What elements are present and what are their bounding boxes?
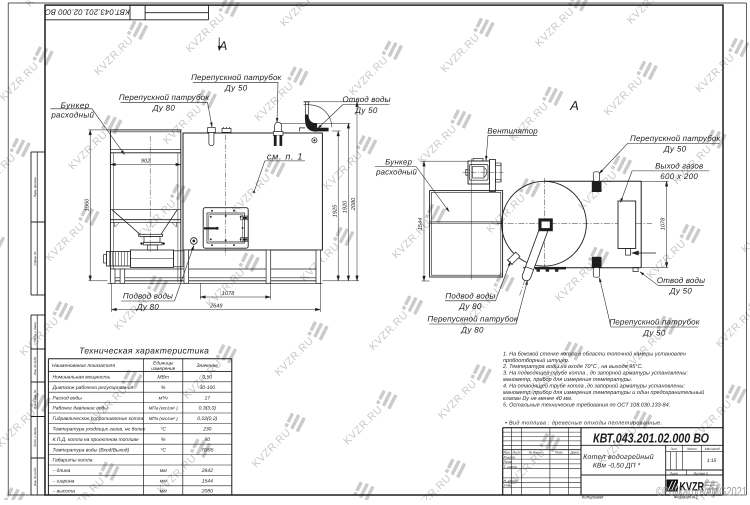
svg-text:Перепускной патрубок: Перепускной патрубок	[191, 73, 282, 82]
svg-text:1. На боковой стенке котла в: 1. На боковой стенке котла в области топ…	[503, 350, 686, 357]
svg-text:%: %	[161, 437, 166, 443]
svg-text:902: 902	[141, 159, 151, 165]
svg-text:Значение: Значение	[196, 363, 218, 369]
svg-text:расходный: расходный	[50, 111, 94, 120]
svg-text:манометр, прибор для измерени: манометр, прибор для измерения температу…	[503, 376, 632, 383]
svg-text:А: А	[218, 39, 227, 53]
svg-text:Разраб.: Разраб.	[504, 455, 516, 459]
svg-text:КВТ.043.201.02.000 ВО: КВТ.043.201.02.000 ВО	[45, 8, 130, 17]
svg-text:Единицы: Единицы	[153, 360, 174, 366]
svg-text:2. Температура воды на входе: 2. Температура воды на входе 70°С , на в…	[502, 364, 643, 370]
svg-text:1:15: 1:15	[707, 458, 717, 464]
svg-text:Перепускной патрубок: Перепускной патрубок	[427, 315, 518, 324]
svg-text:пробоотборный штуцер.: пробоотборный штуцер.	[503, 357, 569, 364]
svg-text:Ду 80: Ду 80	[460, 325, 484, 334]
svg-text:Ду 50: Ду 50	[642, 328, 666, 337]
svg-text:Наименование показателя: Наименование показателя	[52, 363, 115, 369]
svg-text:Подвод воды: Подвод воды	[123, 292, 173, 301]
svg-text:Лист: Лист	[669, 471, 679, 475]
svg-text:см. п. 1: см. п. 1	[267, 151, 303, 161]
svg-text:1078: 1078	[661, 217, 667, 230]
svg-text:1544: 1544	[202, 479, 213, 485]
svg-text:Справ. №: Справ. №	[33, 251, 37, 266]
svg-text:©PolikarpovaMG2021: ©PolikarpovaMG2021	[656, 485, 747, 499]
svg-text:Номинальная мощность: Номинальная мощность	[53, 375, 111, 381]
svg-text:Ду 80: Ду 80	[152, 104, 176, 113]
svg-text:Лит.: Лит.	[669, 447, 678, 451]
svg-text:Ду 50: Ду 50	[669, 287, 693, 296]
svg-text:Бункер: Бункер	[385, 158, 413, 167]
svg-text:манометр, прибор для измерени: манометр, прибор для измерения температу…	[503, 389, 704, 396]
svg-text:• Вид топлива : древесные от: • Вид топлива : древесные отходы пеллети…	[505, 420, 662, 426]
svg-text:Выход газов: Выход газов	[655, 162, 703, 171]
svg-text:Взам. инв. №: Взам. инв. №	[33, 389, 37, 409]
svg-text:Изм.: Изм.	[504, 450, 511, 454]
svg-text:Масса: Масса	[687, 447, 697, 451]
svg-text:2642: 2642	[201, 468, 213, 474]
svg-text:1544: 1544	[418, 218, 424, 230]
svg-text:Лист: Лист	[511, 450, 521, 454]
svg-text:К.П.Д. котла на проектном топл: К.П.Д. котла на проектном топливе	[53, 437, 139, 443]
svg-text:0,50: 0,50	[202, 375, 212, 381]
svg-text:Подп. и дата: Подп. и дата	[33, 427, 37, 447]
svg-text:МПа (кгс/см² ): МПа (кгс/см² )	[149, 416, 178, 421]
svg-text:2649: 2649	[209, 303, 222, 309]
svg-text:Н. контр.: Н. контр.	[504, 479, 519, 483]
svg-text:– ширина: – ширина	[52, 480, 75, 485]
svg-text:Температура воды (Вход/Выход): Температура воды (Вход/Выход)	[53, 447, 130, 453]
svg-text:Масштаб: Масштаб	[705, 447, 720, 451]
svg-text:клапан Dу не менее 40 мм.: клапан Dу не менее 40 мм.	[503, 396, 572, 402]
svg-text:30-100: 30-100	[200, 385, 216, 391]
svg-text:Подп. и дата: Подп. и дата	[33, 322, 37, 342]
svg-text:2080: 2080	[201, 488, 213, 494]
svg-text:Подп.: Подп.	[555, 450, 564, 454]
svg-text:Т. контр.: Т. контр.	[504, 465, 518, 469]
svg-text:Дата: Дата	[569, 450, 579, 454]
svg-text:0,3(3,0): 0,3(3,0)	[199, 406, 217, 412]
svg-text:3. На подводящей трубе котла: 3. На подводящей трубе котла , до запорн…	[503, 370, 688, 377]
svg-text:Диапазон рабочего регулировани: Диапазон рабочего регулирования	[52, 385, 134, 391]
svg-text:№ докум.: № докум.	[529, 450, 543, 454]
svg-text:Техническая характеристика: Техническая характеристика	[79, 346, 209, 356]
svg-text:600 х 200: 600 х 200	[660, 172, 698, 181]
svg-text:Ду 50: Ду 50	[663, 145, 687, 154]
svg-text:Ду 80: Ду 80	[136, 302, 160, 311]
svg-text:Ду 80: Ду 80	[458, 302, 482, 311]
svg-text:%: %	[161, 385, 166, 391]
svg-text:Ду 50: Ду 50	[224, 84, 248, 93]
svg-text:Отвод воды: Отвод воды	[657, 276, 705, 285]
svg-text:1078: 1078	[222, 291, 235, 297]
svg-text:2080: 2080	[351, 197, 357, 211]
svg-text:70/95: 70/95	[201, 447, 214, 453]
svg-text:Копировал: Копировал	[582, 495, 604, 500]
svg-text:МПа (кгс/см² ): МПа (кгс/см² )	[149, 406, 178, 411]
svg-text:м³/ч: м³/ч	[159, 395, 168, 401]
svg-text:Перв. примен.: Перв. примен.	[33, 177, 37, 198]
svg-text:– высота: – высота	[52, 489, 76, 494]
svg-text:4. На отводящей трубе котла ,: 4. На отводящей трубе котла ,до запорной…	[503, 382, 685, 389]
svg-text:– длина: – длина	[52, 468, 71, 474]
svg-text:КВм -0,50 ДП *: КВм -0,50 ДП *	[593, 463, 641, 470]
svg-text:мм: мм	[160, 468, 167, 474]
svg-text:°С: °С	[160, 447, 166, 453]
svg-text:А: А	[569, 98, 579, 113]
svg-text:5. Остальные технические треб: 5. Остальные технические требования по О…	[503, 402, 670, 409]
svg-text:Инв. № подл.: Инв. № подл.	[33, 467, 37, 486]
svg-text:расходный: расходный	[375, 168, 417, 177]
svg-text:Котел водогрейный: Котел водогрейный	[583, 453, 654, 461]
svg-text:Утв.: Утв.	[504, 484, 512, 488]
svg-text:КВТ.043.201.02.000 ВО: КВТ.043.201.02.000 ВО	[593, 430, 709, 445]
svg-text:Температура уходящих газов, не: Температура уходящих газов, не более	[53, 427, 146, 433]
svg-text:Перепускной патрубок: Перепускной патрубок	[119, 93, 210, 102]
svg-text:0,02(0,2): 0,02(0,2)	[197, 416, 217, 422]
svg-text:мм: мм	[160, 488, 167, 494]
svg-text:Пров.: Пров.	[504, 460, 513, 464]
svg-text:Подвод воды: Подвод воды	[445, 291, 495, 300]
svg-text:Ду 50: Ду 50	[354, 106, 378, 115]
svg-text:Расход воды: Расход воды	[53, 395, 83, 401]
svg-text:мм: мм	[160, 479, 167, 485]
svg-text:Габариты котла: Габариты котла	[53, 458, 93, 464]
svg-text:Инв. № дубл.: Инв. № дубл.	[33, 356, 37, 375]
svg-text:измерения: измерения	[151, 367, 175, 372]
svg-text:80: 80	[205, 437, 211, 443]
svg-text:Рабочее давление воды: Рабочее давление воды	[53, 406, 109, 412]
svg-text:Вентилятор: Вентилятор	[487, 126, 538, 135]
svg-text:17: 17	[205, 395, 211, 401]
svg-text:Листов 3: Листов 3	[692, 471, 707, 475]
svg-text:1925: 1925	[332, 204, 338, 217]
svg-text:Гидравлическое сопротивление к: Гидравлическое сопротивление котла	[53, 416, 144, 422]
svg-text:Перепускной патрубок: Перепускной патрубок	[630, 134, 721, 143]
svg-text:1960: 1960	[85, 198, 91, 211]
svg-text:Отвод воды: Отвод воды	[342, 95, 390, 104]
svg-text:Перепускной патрубок: Перепускной патрубок	[609, 318, 700, 327]
svg-text:230: 230	[202, 427, 212, 433]
svg-text:1920: 1920	[343, 200, 349, 213]
svg-text:°С: °С	[160, 427, 166, 433]
svg-text:МВт: МВт	[157, 375, 169, 381]
